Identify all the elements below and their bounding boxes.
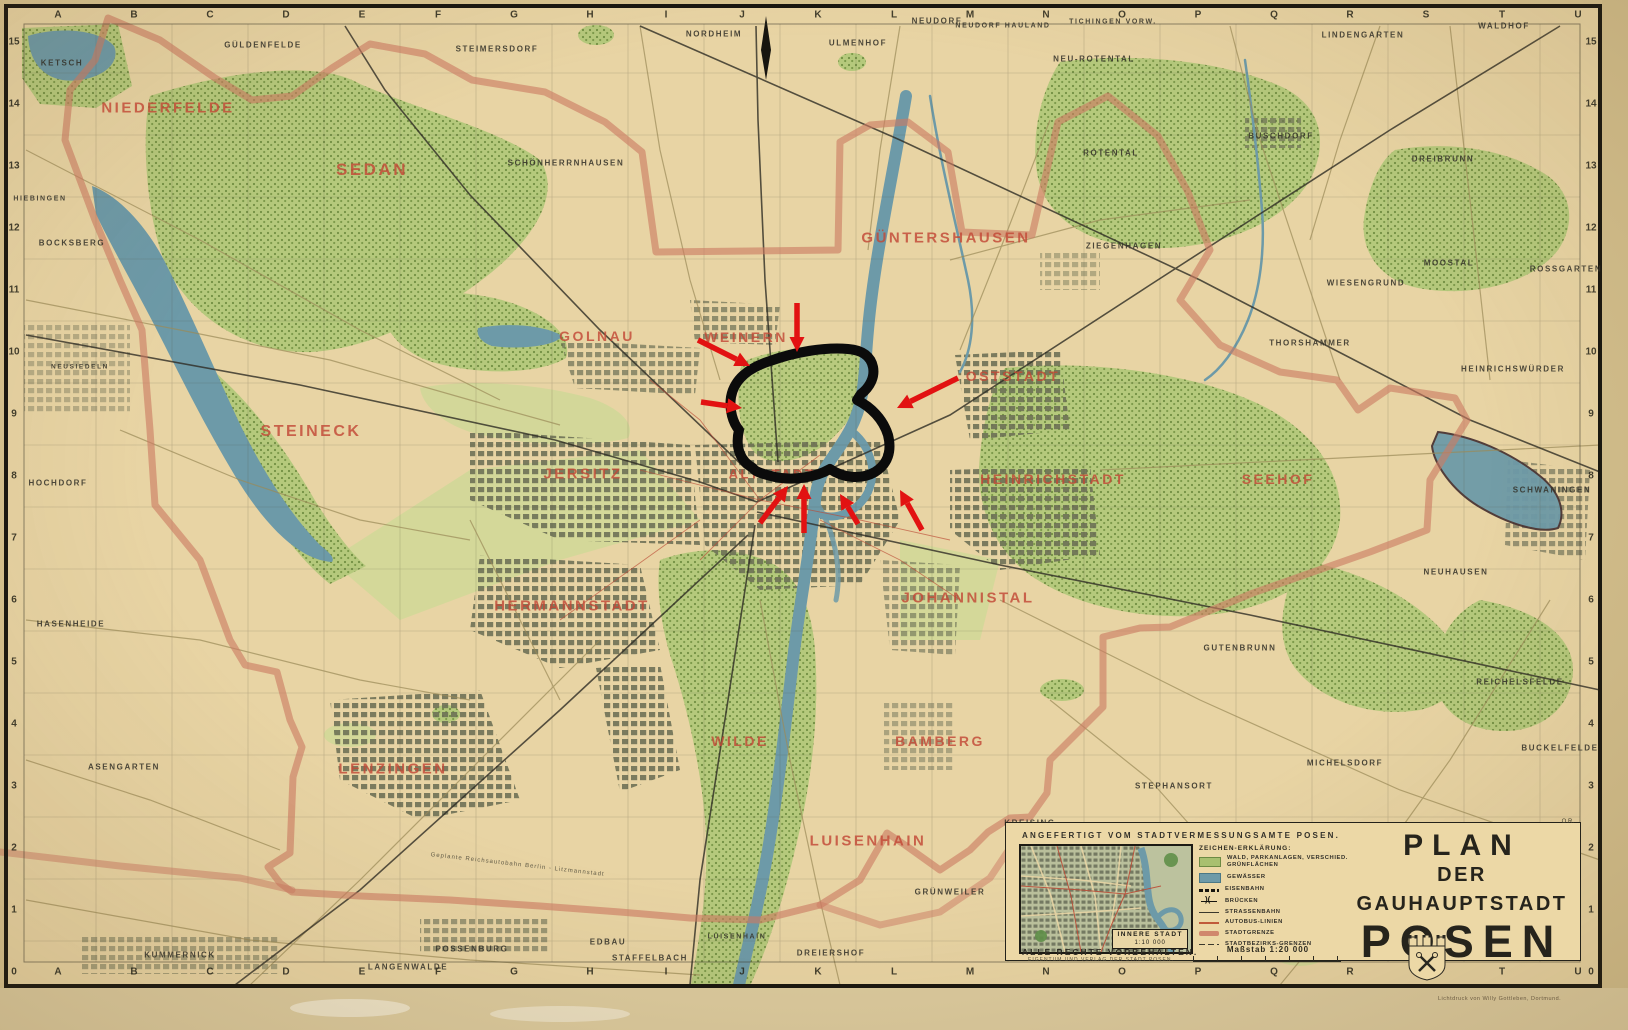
legend-item: EISENBAHN [1199,886,1349,893]
scale-bar [1193,956,1341,962]
legend-item: GEWÄSSER [1199,873,1349,883]
legend-item: WALD, PARKANLAGEN, VERSCHIED. GRÜNFLÄCHE… [1199,855,1349,869]
inner-city-inset-map: INNERE STADT 1:10 000 [1019,844,1193,954]
legend-symbol-tram-icon [1199,912,1219,914]
inset-label-line1: INNERE STADT [1117,931,1183,939]
legend-item-label: GEWÄSSER [1227,874,1266,881]
title-gauhauptstadt: DER GAUHAUPTSTADT [1352,861,1572,919]
legend-item-label: STADTGRENZE [1225,930,1275,937]
legend-symbol-blue-icon [1199,873,1221,883]
legend-item: AUTOBUS-LINIEN [1199,919,1349,926]
printer-credit: Lichtdruck von Willy Gottleben, Dortmund… [1438,996,1561,1002]
legend-item: STADTGRENZE [1199,930,1349,937]
legend-item-label: EISENBAHN [1225,886,1265,893]
scale-label: Maßstab 1:20 000 [1193,945,1343,954]
legend-item: STRASSENBAHN [1199,909,1349,916]
legend-item-label: STRASSENBAHN [1225,909,1281,916]
legend-symbol-bus-icon [1199,922,1219,924]
city-crest [1406,935,1448,981]
title-posen: POSEN [1352,919,1572,965]
legend-item-label: BRÜCKEN [1225,898,1258,905]
legend-symbol-bridge-icon [1199,897,1219,905]
legend-symbol-grenze-icon [1199,931,1219,936]
legend-item-label: WALD, PARKANLAGEN, VERSCHIED. GRÜNFLÄCHE… [1227,855,1349,869]
inset-label-line2: 1:10 000 [1117,940,1183,948]
legend-panel: ANGEFERTIGT VOM STADTVERMESSUNGSAMTE POS… [1005,822,1581,961]
legend-items: WALD, PARKANLAGEN, VERSCHIED. GRÜNFLÄCHE… [1199,855,1349,948]
title-plan: PLAN [1352,831,1572,861]
legend-title: ZEICHEN-ERKLÄRUNG: [1199,845,1349,852]
map-posen: AABBCCDDEEFFGGHHIIJJKKLLMMNNOOPPQQRRSSTT… [0,0,1628,1030]
legend-symbol-rail-icon [1199,889,1219,892]
rights-line: ALLE RECHTE VORBEHALTEN. [1022,947,1198,957]
legend-item: BRÜCKEN [1199,897,1349,905]
legend-item-label: AUTOBUS-LINIEN [1225,919,1283,926]
legend-symbol-green-icon [1199,857,1221,867]
credit-line: ANGEFERTIGT VOM STADTVERMESSUNGSAMTE POS… [1022,831,1340,840]
legend: ZEICHEN-ERKLÄRUNG: WALD, PARKANLAGEN, VE… [1199,845,1349,952]
title-block: PLAN DER GAUHAUPTSTADT POSEN [1352,831,1572,965]
corner-initials: O.R. [1562,819,1574,825]
rights-subline: EIGENTUM UND VERLAG DER STADT POSEN. [1028,957,1174,963]
